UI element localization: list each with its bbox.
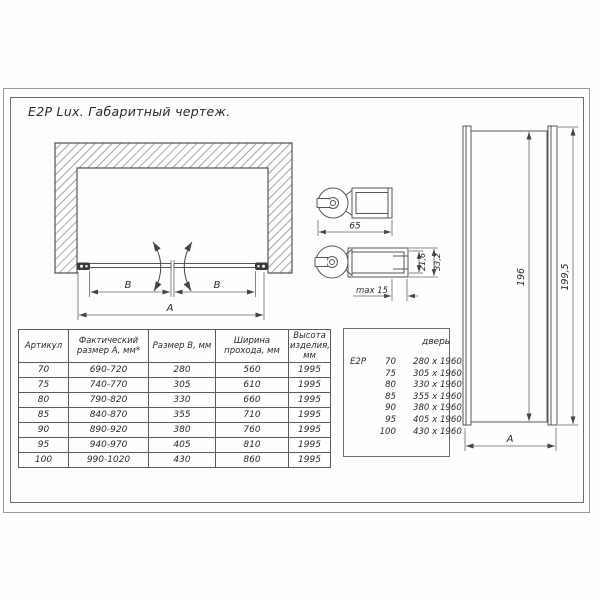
size-table-cell-size-b: 305: [149, 378, 216, 393]
size-table-cell-size-a: 690-720: [69, 363, 149, 378]
door-table-series: [350, 369, 374, 381]
size-table-cell-size-a: 940-970: [69, 438, 149, 453]
dim-label-a-side: A: [506, 434, 514, 445]
dim-label-21-6: 21,6: [418, 253, 427, 271]
door-table: дверь E2P 70 280 x 1960 75 305 x 1960 80: [343, 328, 450, 457]
size-table-header-articul: Артикул: [19, 330, 69, 363]
size-table-cell-size-b: 330: [149, 393, 216, 408]
door-table-row: 95 405 x 1960: [350, 415, 449, 427]
door-table-series: [350, 380, 374, 392]
door-table-row: 100 430 x 1960: [350, 427, 449, 439]
right-door-panel: [174, 264, 256, 268]
size-table-cell-passage: 560: [216, 363, 289, 378]
dim-label-b-right: B: [214, 280, 221, 291]
door-table-articul: 85: [374, 392, 396, 404]
door-table-row: 90 380 x 1960: [350, 403, 449, 415]
size-table-cell-size-a: 990-1020: [69, 453, 149, 468]
door-table-series: E2P: [350, 357, 374, 369]
right-hinge: [255, 263, 268, 271]
size-table-cell-height: 1995: [289, 453, 331, 468]
dim-label-199-5: 199,5: [560, 263, 571, 290]
size-table-cell-articul: 80: [19, 393, 69, 408]
drawing-sheet: E2P Lux. Габаритный чертеж.: [0, 0, 600, 600]
size-table-cell-articul: 70: [19, 363, 69, 378]
size-table-header-size-b: Размер В, мм: [149, 330, 216, 363]
door-table-row: 75 305 x 1960: [350, 369, 449, 381]
size-table-row: 70 690-720 280 560 1995: [19, 363, 331, 378]
size-table-cell-height: 1995: [289, 408, 331, 423]
dim-label-196: 196: [516, 268, 527, 286]
size-table-cell-height: 1995: [289, 438, 331, 453]
size-table-cell-height: 1995: [289, 393, 331, 408]
size-table-cell-size-b: 355: [149, 408, 216, 423]
door-table-articul: 95: [374, 415, 396, 427]
size-table-row: 75 740-770 305 610 1995: [19, 378, 331, 393]
door-table-articul: 100: [374, 427, 396, 439]
door-table-series: [350, 403, 374, 415]
size-table-cell-height: 1995: [289, 378, 331, 393]
door-table-dimensions: 380 x 1960: [396, 403, 462, 415]
size-table-cell-size-a: 790-820: [69, 393, 149, 408]
size-table-cell-articul: 90: [19, 423, 69, 438]
size-table-cell-passage: 710: [216, 408, 289, 423]
door-table-header: дверь: [350, 337, 449, 349]
size-table-row: 80 790-820 330 660 1995: [19, 393, 331, 408]
size-table-cell-passage: 860: [216, 453, 289, 468]
right-wall-profile: [548, 126, 557, 425]
left-hinge: [77, 263, 90, 271]
hinge-detail-drawings: 65 21,6 33,2: [295, 170, 460, 310]
door-table-dimensions: 430 x 1960: [396, 427, 462, 439]
door-table-dimensions: 330 x 1960: [396, 380, 462, 392]
left-wall-profile: [463, 126, 471, 425]
size-table-cell-size-a: 840-870: [69, 408, 149, 423]
size-table-header-height: Высота изделия, мм: [289, 330, 331, 363]
size-table-cell-passage: 660: [216, 393, 289, 408]
size-table-header-passage: Ширина прохода, мм: [216, 330, 289, 363]
size-table-cell-passage: 810: [216, 438, 289, 453]
size-table-cell-passage: 610: [216, 378, 289, 393]
door-table-dimensions: 305 x 1960: [396, 369, 462, 381]
size-table-cell-height: 1995: [289, 423, 331, 438]
left-door-panel: [89, 264, 171, 268]
hinge-profile-section-closed: [315, 188, 392, 218]
size-table-cell-size-a: 890-920: [69, 423, 149, 438]
door-table-rows: E2P 70 280 x 1960 75 305 x 1960 80 330 x…: [350, 357, 449, 438]
door-table-series: [350, 415, 374, 427]
door-table-dimensions: 355 x 1960: [396, 392, 462, 404]
door-table-articul: 70: [374, 357, 396, 369]
size-table-cell-articul: 95: [19, 438, 69, 453]
dim-label-b-left: B: [125, 280, 132, 291]
dim-label-max15: max 15: [356, 286, 388, 296]
side-view-drawing: 196 199,5 A: [455, 115, 595, 465]
door-table-articul: 80: [374, 380, 396, 392]
door-table-row: 85 355 x 1960: [350, 392, 449, 404]
door-glass-panel: [471, 131, 547, 422]
door-table-series: [350, 392, 374, 404]
size-table-cell-size-b: 405: [149, 438, 216, 453]
door-table-row: 80 330 x 1960: [350, 380, 449, 392]
size-table-cell-size-b: 430: [149, 453, 216, 468]
door-table-dimensions: 280 x 1960: [396, 357, 462, 369]
size-table-row: 90 890-920 380 760 1995: [19, 423, 331, 438]
drawing-title: E2P Lux. Габаритный чертеж.: [28, 104, 230, 119]
wall-section-hatched: [55, 143, 292, 273]
size-table-row: 85 840-870 355 710 1995: [19, 408, 331, 423]
size-table-cell-height: 1995: [289, 363, 331, 378]
size-table-cell-articul: 100: [19, 453, 69, 468]
top-view-drawing: B B A: [40, 135, 300, 325]
door-table-series: [350, 427, 374, 439]
size-table-row: 100 990-1020 430 860 1995: [19, 453, 331, 468]
door-table-articul: 90: [374, 403, 396, 415]
size-table-header-size-a: Фактический размер А, мм*: [69, 330, 149, 363]
door-table-articul: 75: [374, 369, 396, 381]
size-table-header-row: Артикул Фактический размер А, мм* Размер…: [19, 330, 331, 363]
size-table: Артикул Фактический размер А, мм* Размер…: [18, 329, 331, 468]
size-table-cell-articul: 75: [19, 378, 69, 393]
size-table-cell-size-b: 380: [149, 423, 216, 438]
door-table-row: E2P 70 280 x 1960: [350, 357, 449, 369]
door-table-dimensions: 405 x 1960: [396, 415, 462, 427]
hinge-profile-section-glass: [313, 246, 408, 278]
dim-label-a: A: [166, 303, 174, 314]
size-table-cell-passage: 760: [216, 423, 289, 438]
dim-label-33-2: 33,2: [433, 253, 442, 271]
size-table-row: 95 940-970 405 810 1995: [19, 438, 331, 453]
dim-label-65: 65: [349, 222, 361, 232]
size-table-cell-size-a: 740-770: [69, 378, 149, 393]
size-table-cell-articul: 85: [19, 408, 69, 423]
size-table-cell-size-b: 280: [149, 363, 216, 378]
